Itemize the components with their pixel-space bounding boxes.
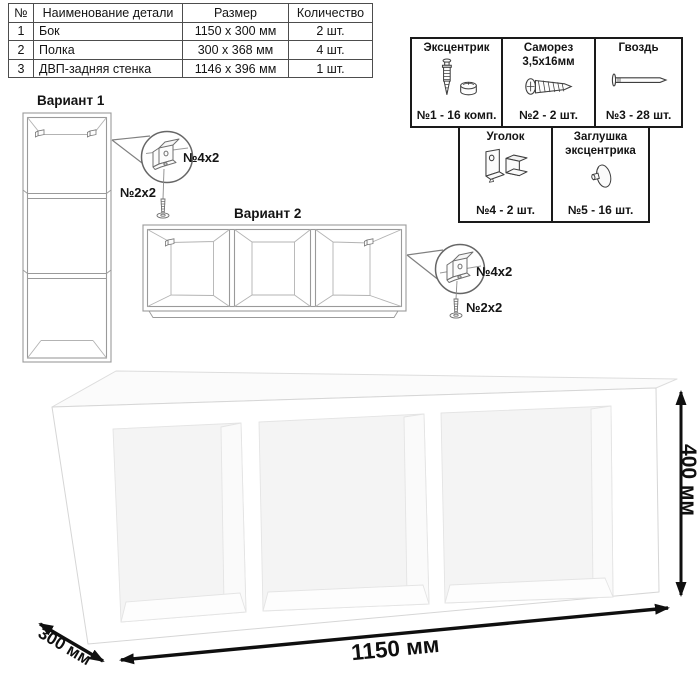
height-dimension-label: 400 мм bbox=[677, 444, 700, 516]
table-row: 3 ДВП-задняя стенка 1146 x 396 мм 1 шт. bbox=[9, 59, 373, 78]
part-number: 2 bbox=[9, 41, 34, 60]
shelf-compartment bbox=[113, 423, 246, 622]
part-number: 1 bbox=[9, 22, 34, 41]
hardware-qty: №3 - 28 шт. bbox=[606, 108, 672, 122]
variant-diagrams: Вариант 1 №4x2 №2x2 Вариант 2 bbox=[0, 85, 560, 377]
part-name: Бок bbox=[34, 22, 183, 41]
screw-icon bbox=[450, 299, 462, 318]
table-row: 2 Полка 300 x 368 мм 4 шт. bbox=[9, 41, 373, 60]
variant2-title: Вариант 2 bbox=[234, 206, 301, 221]
col-header-number: № bbox=[9, 4, 34, 23]
variant1-shelf-outline bbox=[23, 113, 111, 362]
part-size: 300 x 368 мм bbox=[183, 41, 289, 60]
hardware-name: Саморез 3,5х16мм bbox=[503, 42, 594, 69]
eccentric-cap-icon bbox=[582, 159, 620, 195]
part-size: 1150 x 300 мм bbox=[183, 22, 289, 41]
corner-bracket-mini-icon bbox=[35, 130, 44, 137]
screw-count-label: №2x2 bbox=[120, 185, 156, 200]
hardware-qty: №5 - 16 шт. bbox=[568, 203, 634, 217]
hardware-item-nail: Гвоздь №3 - 28 шт. bbox=[594, 37, 683, 128]
part-name: ДВП-задняя стенка bbox=[34, 59, 183, 78]
table-row: 1 Бок 1150 x 300 мм 2 шт. bbox=[9, 22, 373, 41]
corner-bracket-mini-icon bbox=[364, 239, 373, 246]
parts-table: № Наименование детали Размер Количество … bbox=[8, 3, 373, 78]
variant1-callout: №4x2 №2x2 bbox=[112, 132, 219, 219]
screw-icon bbox=[157, 199, 169, 218]
part-name: Полка bbox=[34, 41, 183, 60]
part-qty: 1 шт. bbox=[289, 59, 373, 78]
shelf-compartment bbox=[259, 414, 429, 611]
variant1-diagram: Вариант 1 №4x2 №2x2 bbox=[23, 93, 219, 362]
shelf-compartment bbox=[441, 406, 613, 603]
shelf-unit-render bbox=[52, 371, 677, 644]
col-header-size: Размер bbox=[183, 4, 289, 23]
variant2-diagram: Вариант 2 №4x2 №2x2 bbox=[143, 206, 512, 318]
part-size: 1146 x 396 мм bbox=[183, 59, 289, 78]
variant1-title: Вариант 1 bbox=[37, 93, 105, 108]
parts-table-header-row: № Наименование детали Размер Количество bbox=[9, 4, 373, 23]
shelf-3d-drawing: 400 мм 1150 мм 300 мм bbox=[0, 355, 700, 690]
variant2-callout: №4x2 №2x2 bbox=[407, 245, 512, 319]
bracket-count-label: №4x2 bbox=[183, 150, 219, 165]
hardware-name: Заглушка эксцентрика bbox=[553, 131, 648, 158]
hardware-name: Гвоздь bbox=[615, 42, 661, 56]
hardware-item-cap: Заглушка эксцентрика №5 - 16 шт. bbox=[551, 126, 650, 223]
bracket-count-label: №4x2 bbox=[476, 264, 512, 279]
part-number: 3 bbox=[9, 59, 34, 78]
assembly-instruction-sheet: { "parts_table": { "headers": { "num": "… bbox=[0, 0, 700, 690]
variant2-shelf-outline bbox=[143, 225, 406, 318]
screw-count-label: №2x2 bbox=[466, 300, 502, 315]
hardware-name: Эксцентрик bbox=[420, 42, 492, 56]
corner-bracket-mini-icon bbox=[87, 130, 96, 137]
col-header-qty: Количество bbox=[289, 4, 373, 23]
part-qty: 4 шт. bbox=[289, 41, 373, 60]
nail-icon bbox=[607, 70, 671, 90]
col-header-name: Наименование детали bbox=[34, 4, 183, 23]
part-qty: 2 шт. bbox=[289, 22, 373, 41]
